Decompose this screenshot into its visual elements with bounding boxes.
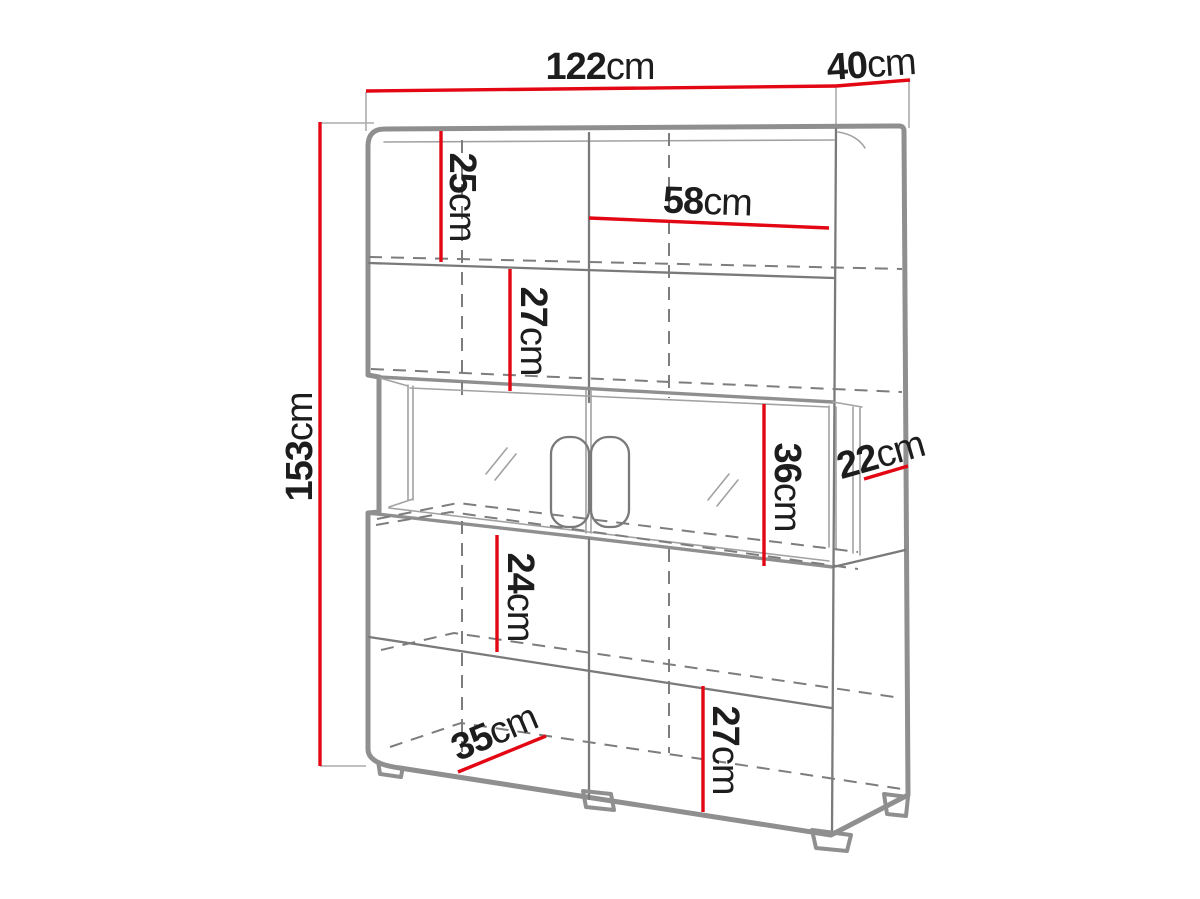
dim-inner-width-label: 58cm bbox=[662, 179, 752, 224]
dim-niche-height-label: 36cm bbox=[766, 443, 808, 532]
top-shelf-hidden-edge bbox=[369, 257, 902, 269]
dim-top-depth-label: 40cm bbox=[825, 41, 917, 89]
diagram-canvas: 122cm 40cm 153cm 25cm 58cm 27cm 36cm 22c… bbox=[0, 0, 1200, 899]
foot-rear-right bbox=[884, 794, 908, 816]
bottom-shelf-hidden-edge bbox=[381, 633, 901, 698]
top-shelf-front-edge bbox=[369, 263, 834, 278]
side-top-corner bbox=[838, 132, 865, 148]
niche-left-bottom-diagonal bbox=[389, 499, 413, 507]
dim-total-height-label: 153cm bbox=[279, 392, 321, 501]
top-section-bottom-side bbox=[833, 402, 862, 407]
handle-cutout-right bbox=[591, 437, 629, 527]
dim-front-width-label: 122cm bbox=[545, 46, 654, 88]
dim-bottom-shelf-label: 27cm bbox=[704, 706, 746, 795]
dim-upper-shelf-label: 27cm bbox=[512, 287, 554, 376]
dim-niche-depth-label: 22cm bbox=[832, 423, 929, 488]
dim-top-shelf-label: 25cm bbox=[441, 153, 483, 242]
top-inner-edge bbox=[384, 140, 834, 142]
niche-floor-side-edge bbox=[833, 550, 905, 567]
dim-lower-shelf-label: 24cm bbox=[499, 553, 541, 642]
handle-cutout-left bbox=[551, 437, 589, 527]
bottom-shelf-front-edge bbox=[369, 637, 831, 708]
furniture-dimension-diagram: 122cm 40cm 153cm 25cm 58cm 27cm 36cm 22c… bbox=[0, 0, 1200, 899]
